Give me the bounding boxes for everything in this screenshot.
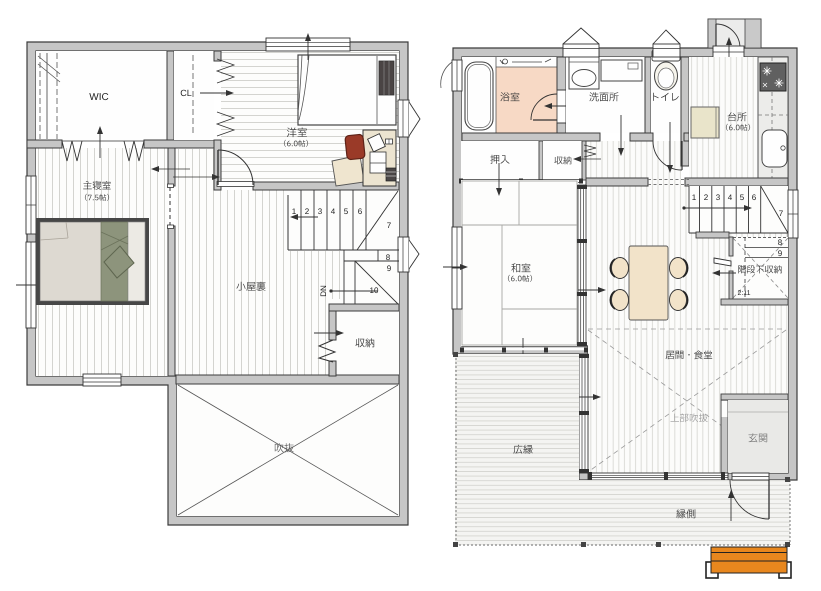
svg-text:4: 4 [728,193,733,202]
svg-text:8: 8 [386,253,391,262]
svg-text:CL: CL [180,88,192,98]
svg-text:4: 4 [331,207,336,216]
svg-text:WIC: WIC [89,92,108,103]
svg-text:10: 10 [370,286,379,295]
svg-text:9: 9 [387,264,392,273]
svg-text:5: 5 [344,207,349,216]
svg-text:3: 3 [716,193,721,202]
svg-text:3: 3 [318,207,323,216]
svg-text:7: 7 [387,221,392,230]
svg-text:2: 2 [704,193,709,202]
svg-text:6: 6 [752,193,757,202]
svg-text:DN: DN [319,285,328,297]
svg-text:9: 9 [778,249,783,258]
svg-text:1: 1 [692,193,697,202]
svg-text:1: 1 [292,207,297,216]
svg-text:2: 2 [305,207,310,216]
svg-text:5: 5 [740,193,745,202]
svg-text:8: 8 [778,238,783,247]
svg-text:6: 6 [358,207,363,216]
svg-text:7: 7 [779,209,784,218]
svg-text:2:11: 2:11 [737,290,750,297]
